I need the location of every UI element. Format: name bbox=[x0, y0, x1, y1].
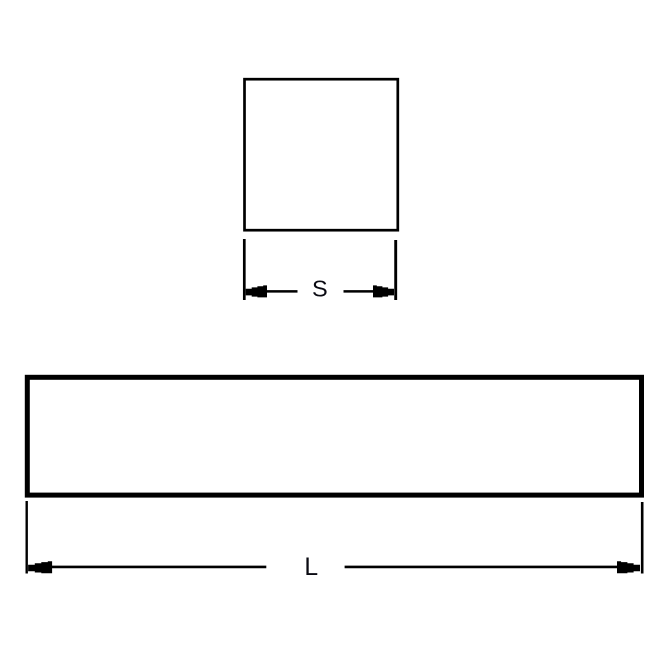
svg-text:S: S bbox=[312, 276, 328, 302]
svg-text:L: L bbox=[304, 554, 318, 581]
